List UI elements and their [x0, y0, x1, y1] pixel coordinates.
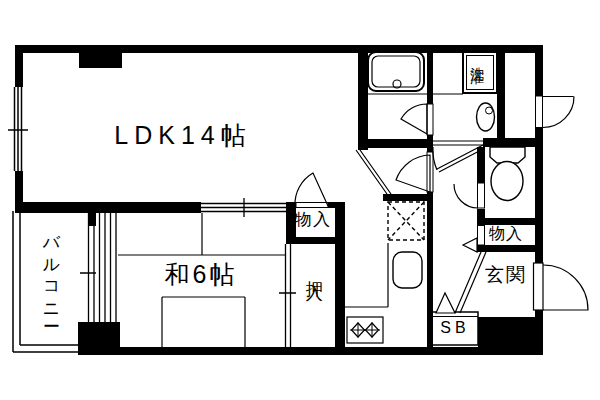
bathtub-icon: [368, 52, 424, 91]
kitchen-sink-icon: [393, 252, 422, 288]
room-label-laundry: 洗濯: [470, 56, 485, 96]
room-label-ldk: LDK14帖: [93, 122, 273, 148]
floorplan-drawing: [0, 0, 600, 400]
toilet-door: [454, 183, 485, 208]
fusuma-ldk-washitsu: [201, 198, 286, 217]
entrance-door: [534, 263, 589, 310]
gas-stove-icon: [347, 317, 383, 343]
ldk-corner-partition: [356, 150, 391, 194]
room-label-storage-ldk: 物入: [289, 211, 337, 229]
room-label-storage-hall: 物入: [482, 226, 530, 243]
balcony-sliding-door: [80, 213, 116, 322]
floorplan: LDK14帖 和6帖 バルコニー 物入 押入 物入 玄関 洗濯 SB: [0, 0, 600, 400]
room-label-shoe-box: SB: [433, 320, 477, 337]
storage-ldk-door: [295, 173, 328, 208]
ldk-window: [8, 87, 28, 171]
genkan-step-marker: [436, 293, 455, 313]
ldk-hall-door: [356, 150, 433, 194]
room-label-washitsu: 和6帖: [143, 261, 259, 287]
room-label-balcony: バルコニー: [42, 223, 60, 343]
washroom-door-threshold: [433, 141, 483, 145]
room-label-genkan: 玄関: [481, 265, 531, 285]
refrigerator-space-icon: [388, 202, 424, 240]
vanity-basin-icon: [477, 103, 495, 131]
door-direction-marker: [463, 238, 477, 252]
bathroom-door: [401, 104, 433, 135]
fusuma-oshiire: [279, 244, 296, 347]
toilet-icon: [490, 147, 525, 201]
service-door-top-right: [536, 96, 575, 128]
room-label-oshiire: 押入: [305, 267, 323, 327]
